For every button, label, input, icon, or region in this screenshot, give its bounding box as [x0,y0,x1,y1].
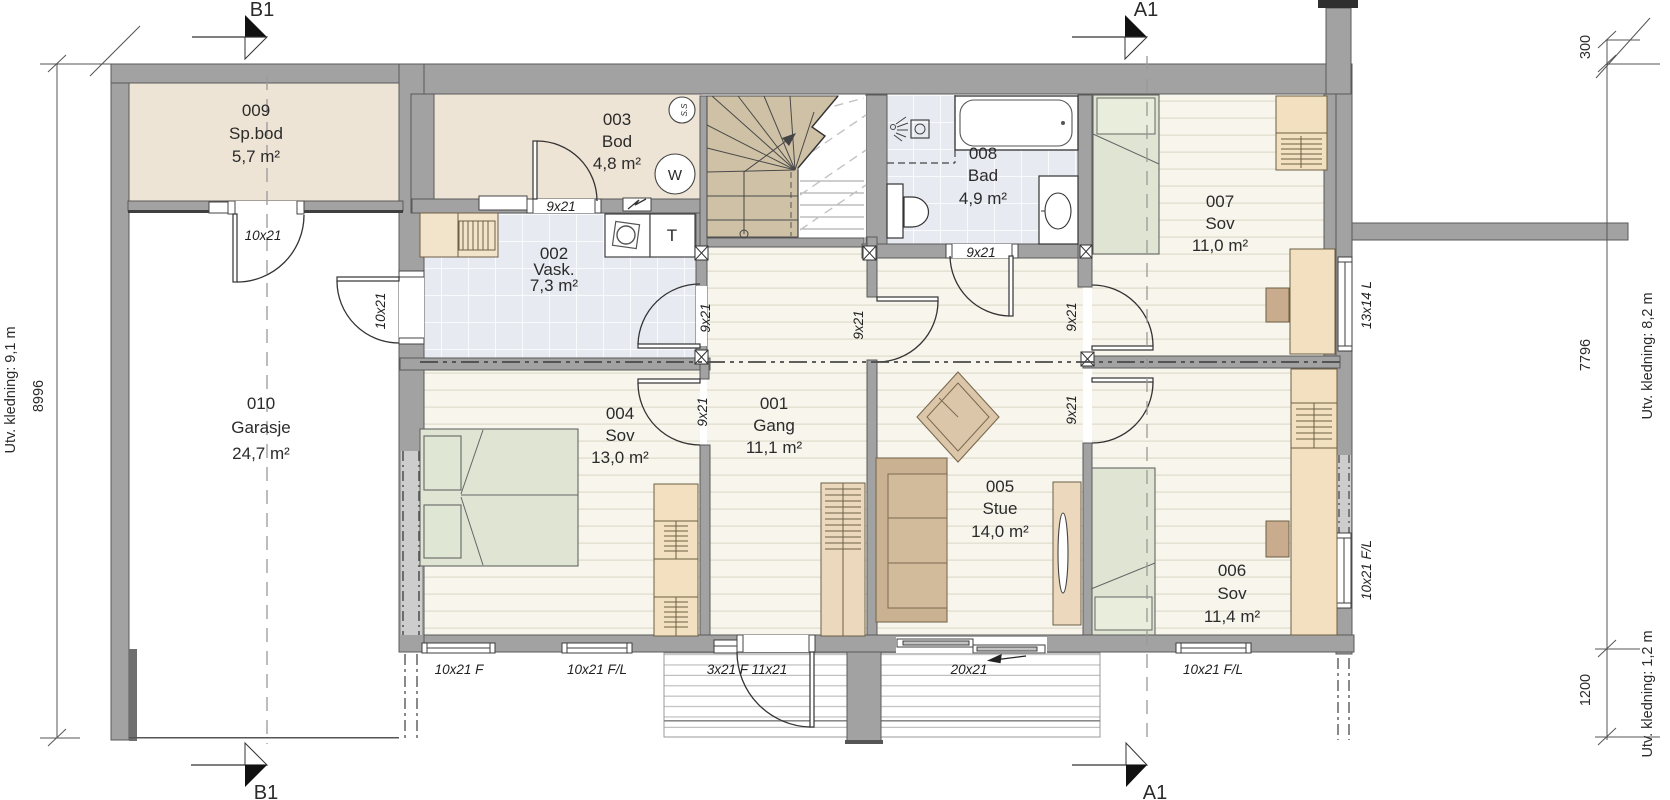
svg-text:005: 005 [986,477,1014,496]
svg-text:11,1 m²: 11,1 m² [746,438,803,457]
svg-text:Utv. kledning: 9,1 m: Utv. kledning: 9,1 m [3,326,19,453]
svg-text:10x21 F/L: 10x21 F/L [567,662,627,677]
svg-text:B1: B1 [254,782,278,800]
svg-text:9x21: 9x21 [546,199,575,214]
svg-text:W: W [668,167,683,184]
svg-text:7,3 m²: 7,3 m² [530,276,579,295]
svg-text:A1: A1 [1134,0,1158,21]
svg-text:9x21: 9x21 [851,310,866,339]
svg-text:3x21 F 11x21: 3x21 F 11x21 [707,662,788,677]
svg-text:006: 006 [1218,561,1246,580]
svg-text:300: 300 [1578,35,1594,59]
svg-text:B1: B1 [250,0,274,21]
svg-text:9x21: 9x21 [966,245,995,260]
svg-text:Bad: Bad [968,166,998,185]
svg-text:Sp.bod: Sp.bod [229,124,283,143]
svg-text:24,7 m²: 24,7 m² [232,444,290,463]
svg-text:10x21 F/L: 10x21 F/L [1183,662,1243,677]
svg-text:9x21: 9x21 [695,397,710,426]
svg-text:14,0 m²: 14,0 m² [971,522,1029,541]
svg-text:10x21: 10x21 [245,228,282,243]
svg-text:13x14 L: 13x14 L [1359,281,1374,329]
svg-text:1200: 1200 [1578,674,1594,706]
svg-text:004: 004 [606,404,634,423]
svg-text:007: 007 [1206,192,1234,211]
svg-text:Utv. kledning: 8,2 m: Utv. kledning: 8,2 m [1640,292,1656,419]
svg-text:Sov: Sov [1205,214,1235,233]
svg-text:13,0 m²: 13,0 m² [591,448,649,467]
svg-text:T: T [667,226,677,245]
svg-text:Gang: Gang [753,416,795,435]
svg-text:Sov: Sov [1217,584,1247,603]
svg-text:11,4 m²: 11,4 m² [1204,607,1261,626]
svg-text:10x21 F/L: 10x21 F/L [1359,540,1374,600]
svg-text:10x21 F: 10x21 F [435,662,485,677]
svg-text:10x21: 10x21 [373,293,388,330]
svg-text:008: 008 [969,144,997,163]
svg-text:5,7 m²: 5,7 m² [232,147,281,166]
svg-text:Garasje: Garasje [231,418,291,437]
svg-text:A1: A1 [1143,782,1167,800]
svg-text:9x21: 9x21 [1064,302,1079,331]
svg-text:Bod: Bod [602,132,632,151]
svg-text:010: 010 [247,394,275,413]
svg-text:4,9 m²: 4,9 m² [959,189,1008,208]
svg-text:20x21: 20x21 [950,662,988,677]
svg-text:4,8 m²: 4,8 m² [593,154,642,173]
svg-text:8996: 8996 [31,380,47,412]
svg-text:001: 001 [760,394,788,413]
svg-text:Stue: Stue [983,499,1018,518]
svg-text:S.S: S.S [680,103,689,117]
svg-text:11,0 m²: 11,0 m² [1192,236,1249,255]
svg-text:009: 009 [242,101,270,120]
svg-text:003: 003 [603,110,631,129]
svg-text:7796: 7796 [1578,339,1594,371]
svg-text:9x21: 9x21 [698,303,713,332]
svg-text:Utv. kledning: 1,2 m: Utv. kledning: 1,2 m [1640,630,1656,757]
svg-text:Sov: Sov [605,426,635,445]
svg-text:9x21: 9x21 [1064,395,1079,424]
